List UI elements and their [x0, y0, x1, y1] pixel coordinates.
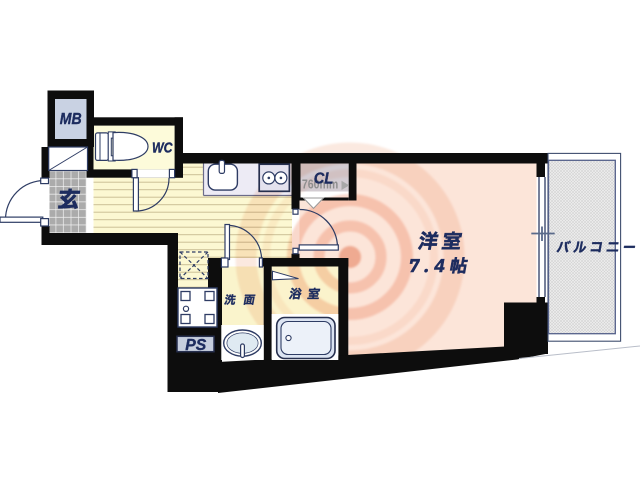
svg-text:WC: WC [152, 140, 173, 157]
svg-text:PS: PS [185, 337, 206, 354]
svg-text:CL: CL [314, 171, 334, 188]
svg-text:MB: MB [60, 111, 82, 128]
